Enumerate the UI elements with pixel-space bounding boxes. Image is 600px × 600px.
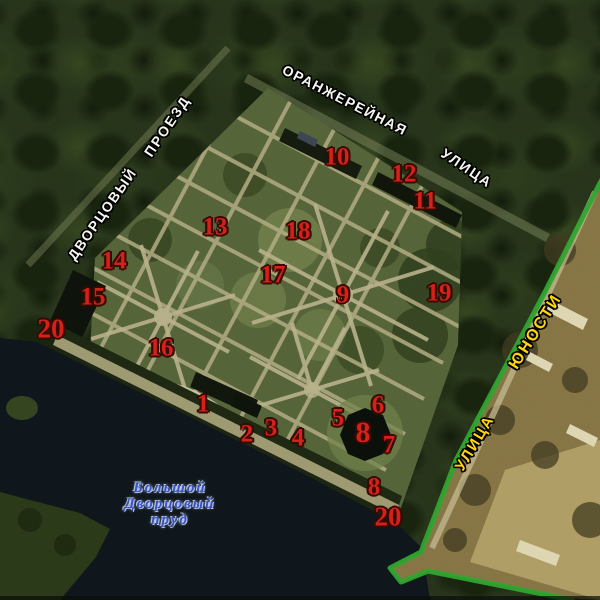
grain-overlay [0, 0, 600, 600]
pond-label-line: пруд [124, 512, 215, 528]
pond-label-line: Дворцовый [124, 496, 215, 512]
bottom-edge [0, 596, 600, 600]
pond-label-line: Большой [124, 480, 215, 496]
pond-label: БольшойДворцовыйпруд [124, 480, 215, 528]
map-canvas: ОРАНЖЕРЕЙНАЯУЛИЦАПРОЕЗДДВОРЦОВЫЙЮНОСТИУЛ… [0, 0, 600, 600]
map-artwork [0, 0, 600, 600]
